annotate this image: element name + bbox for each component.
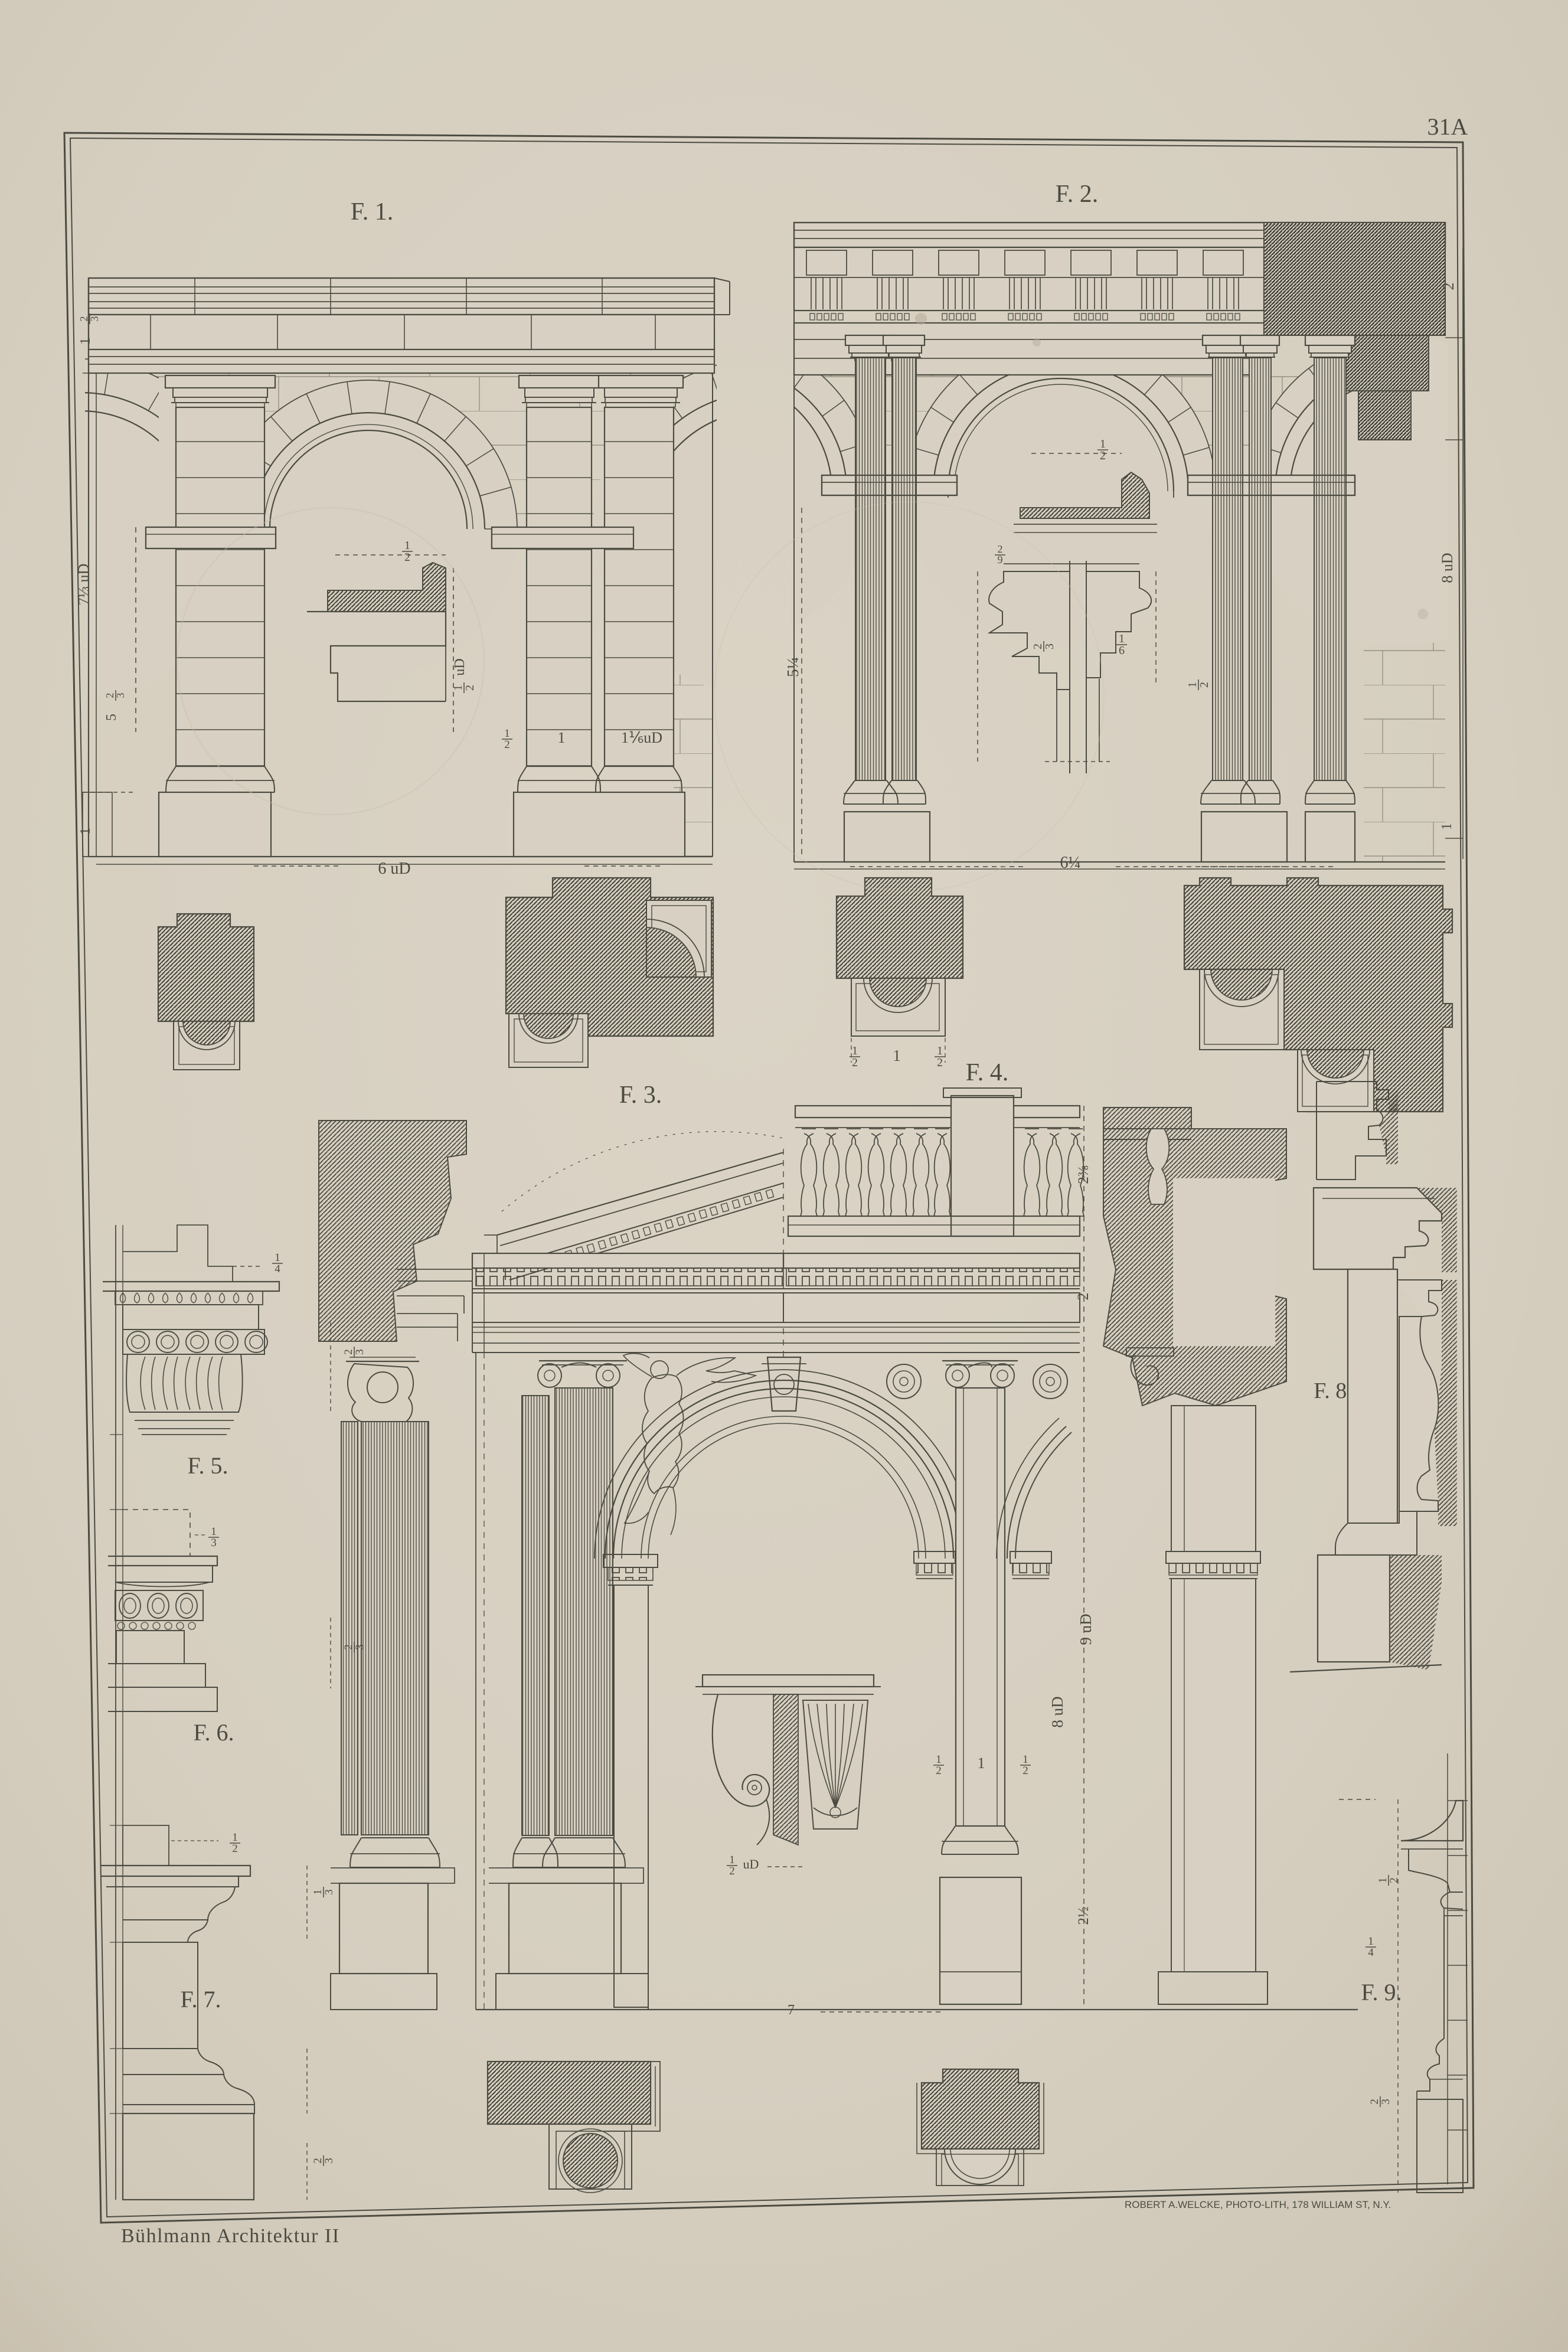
svg-text:F. 2.: F. 2.	[1056, 181, 1099, 208]
svg-text:1: 1	[1439, 823, 1455, 830]
svg-text:2⅜: 2⅜	[1076, 1165, 1092, 1184]
svg-text:F. 5.: F. 5.	[187, 1452, 228, 1479]
svg-text:31A: 31A	[1427, 113, 1468, 140]
svg-text:1: 1	[1377, 1877, 1389, 1883]
svg-text:2: 2	[1100, 449, 1106, 462]
svg-text:6¼: 6¼	[1060, 854, 1081, 872]
svg-text:1: 1	[275, 1252, 280, 1264]
svg-text:8 uD: 8 uD	[1048, 1696, 1066, 1727]
svg-text:4: 4	[275, 1263, 280, 1275]
svg-text:2: 2	[504, 739, 510, 751]
svg-text:2: 2	[998, 543, 1003, 555]
svg-text:1: 1	[1368, 1935, 1374, 1948]
svg-text:F. 6.: F. 6.	[193, 1719, 234, 1746]
svg-text:3: 3	[89, 316, 100, 322]
svg-text:1: 1	[78, 338, 93, 345]
svg-text:6: 6	[1119, 644, 1125, 657]
svg-text:1: 1	[504, 727, 510, 740]
svg-text:2: 2	[729, 1865, 735, 1877]
svg-text:2: 2	[1198, 682, 1211, 688]
svg-text:1: 1	[978, 1755, 985, 1772]
svg-text:1: 1	[1119, 632, 1125, 645]
svg-text:2: 2	[1023, 1765, 1028, 1777]
svg-text:1: 1	[893, 1047, 901, 1064]
svg-text:2: 2	[1031, 643, 1044, 649]
svg-text:2: 2	[937, 1056, 943, 1069]
svg-text:uD: uD	[452, 658, 468, 675]
svg-text:1: 1	[211, 1525, 217, 1538]
svg-text:uD: uD	[743, 1857, 759, 1871]
svg-text:F. 4.: F. 4.	[966, 1059, 1009, 1086]
svg-text:7⅓ uD: 7⅓ uD	[75, 564, 92, 606]
svg-text:2: 2	[1440, 283, 1457, 290]
svg-text:4: 4	[1368, 1946, 1374, 1959]
svg-text:1: 1	[937, 1044, 943, 1057]
svg-text:3: 3	[115, 693, 126, 698]
svg-text:1: 1	[558, 729, 566, 746]
svg-text:3: 3	[354, 1644, 366, 1650]
svg-text:8 uD: 8 uD	[1439, 553, 1456, 583]
svg-text:7: 7	[788, 2003, 795, 2018]
svg-text:1: 1	[1100, 437, 1106, 450]
svg-text:F. 8.: F. 8.	[1314, 1378, 1353, 1403]
svg-text:2: 2	[312, 2158, 324, 2164]
svg-text:2: 2	[232, 1843, 238, 1855]
svg-text:2: 2	[104, 693, 116, 698]
svg-text:1: 1	[936, 1753, 942, 1766]
svg-text:F. 3.: F. 3.	[619, 1082, 662, 1109]
svg-text:2: 2	[342, 1644, 355, 1650]
svg-text:5: 5	[104, 714, 119, 721]
svg-text:3: 3	[1043, 643, 1056, 649]
svg-text:1: 1	[1023, 1753, 1028, 1766]
svg-text:1: 1	[729, 1854, 735, 1866]
svg-text:1: 1	[404, 539, 410, 552]
svg-text:6 uD: 6 uD	[378, 860, 410, 878]
svg-text:ROBERT A.WELCKE, PHOTO-LITH, 1: ROBERT A.WELCKE, PHOTO-LITH, 178 WILLIAM…	[1125, 2199, 1391, 2210]
svg-text:5¼: 5¼	[784, 657, 802, 677]
svg-text:3: 3	[323, 2158, 335, 2164]
svg-text:2: 2	[342, 1349, 355, 1355]
svg-text:3: 3	[354, 1349, 366, 1355]
svg-text:9: 9	[998, 554, 1003, 566]
svg-text:Bühlmann Architektur II: Bühlmann Architektur II	[121, 2225, 340, 2247]
svg-text:1⅙uD: 1⅙uD	[621, 729, 662, 746]
svg-text:3: 3	[323, 1889, 335, 1895]
svg-text:2½: 2½	[1076, 1906, 1092, 1925]
svg-text:1: 1	[232, 1831, 238, 1844]
svg-text:9 uD: 9 uD	[1077, 1613, 1095, 1645]
svg-text:2: 2	[936, 1765, 942, 1777]
svg-text:F. 1.: F. 1.	[351, 198, 394, 226]
svg-text:3: 3	[211, 1537, 217, 1549]
svg-text:2: 2	[1074, 1293, 1092, 1301]
svg-text:F. 7.: F. 7.	[180, 1986, 221, 2013]
svg-text:1: 1	[78, 828, 93, 835]
svg-text:1: 1	[852, 1044, 858, 1057]
svg-text:F. 9.: F. 9.	[1361, 1979, 1402, 2005]
svg-text:2: 2	[463, 685, 476, 691]
svg-text:1: 1	[312, 1889, 324, 1895]
svg-text:2: 2	[404, 551, 410, 564]
svg-text:2: 2	[1368, 2099, 1381, 2105]
svg-text:2: 2	[78, 316, 90, 322]
svg-text:2: 2	[1388, 1877, 1400, 1883]
svg-text:1: 1	[1186, 682, 1199, 688]
svg-text:1: 1	[452, 685, 465, 691]
svg-text:2: 2	[852, 1056, 858, 1069]
svg-text:3: 3	[1380, 2099, 1392, 2105]
